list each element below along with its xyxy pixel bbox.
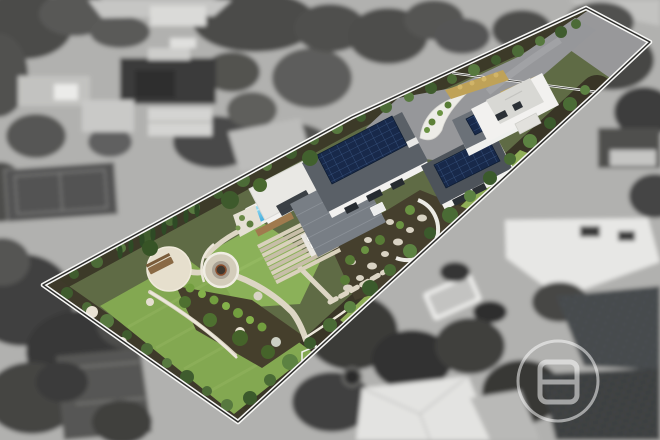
round-spa (343, 368, 361, 386)
aerial-photo (0, 0, 660, 440)
palm-tree (440, 262, 470, 282)
fire-pit-circle (204, 253, 238, 287)
tennis-court (4, 162, 117, 222)
aerial-photo-stage (0, 0, 660, 440)
